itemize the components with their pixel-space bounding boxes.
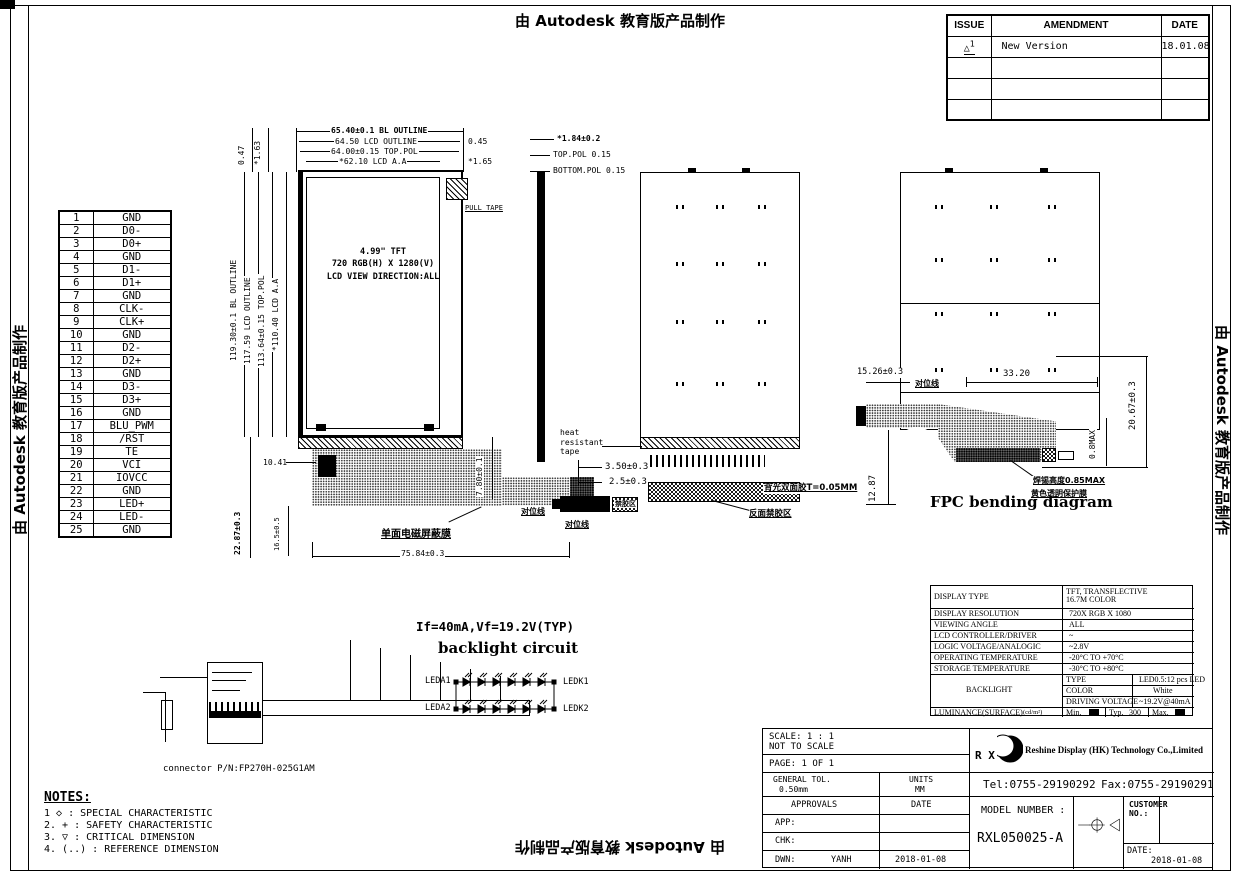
pin-name: D1+ xyxy=(93,277,171,290)
dwn-label: DWN: xyxy=(775,855,795,865)
span-shape: 300 xyxy=(1129,709,1141,717)
dim-offset-165: *1.65 xyxy=(467,157,493,166)
revision-table: ISSUE AMENDMENT DATE △1 New Version 18.0… xyxy=(946,14,1210,121)
dim-aa-h: *110.40 LCD A.A xyxy=(272,278,280,352)
pin-number: 4 xyxy=(59,251,93,264)
pin-row: 23 LED+ xyxy=(59,498,171,511)
section-view-bar xyxy=(537,172,545,462)
drawing-line xyxy=(879,772,880,869)
pin-number: 18 xyxy=(59,433,93,446)
notes-title: NOTES: xyxy=(44,790,219,805)
td-shape xyxy=(991,78,1161,99)
drawing-line xyxy=(530,171,550,172)
dim-75-84: 75.84±0.3 xyxy=(400,549,445,558)
td-shape xyxy=(1161,78,1209,99)
bend-cutout xyxy=(899,427,935,461)
dim-thickness: *1.84±0.2 xyxy=(556,134,601,143)
pin-number: 3 xyxy=(59,238,93,251)
connector-cable xyxy=(263,700,530,716)
drawing-line xyxy=(763,796,1214,797)
pin-number: 24 xyxy=(59,511,93,524)
heat-tape-label: heat resistant tape xyxy=(560,428,603,457)
spec-row-value: -20°C TO +70°C xyxy=(1069,654,1124,662)
div-shape xyxy=(935,368,943,372)
div-shape: resistant xyxy=(560,438,603,448)
led-diode-icon xyxy=(538,705,545,713)
drawing-line xyxy=(1123,796,1124,869)
drawing-line xyxy=(688,168,696,173)
drawing-line xyxy=(763,772,1214,773)
luminance-max-redacted xyxy=(1175,709,1185,716)
bend-tail-tip xyxy=(856,406,866,426)
div-shape xyxy=(1048,258,1056,262)
pin-row: 1 GND xyxy=(59,211,171,225)
pin-row: 11 D2- xyxy=(59,342,171,355)
units-value: MM xyxy=(915,785,925,795)
spec-row-label: VIEWING ANGLE xyxy=(934,621,998,629)
pin-number: 10 xyxy=(59,329,93,342)
pin-number: 2 xyxy=(59,225,93,238)
pin-row: 13 GND xyxy=(59,368,171,381)
drawing-line xyxy=(530,155,550,156)
pin-name: /RST xyxy=(93,433,171,446)
drawing-line xyxy=(1073,796,1074,869)
div-shape xyxy=(716,205,724,209)
drawing-sheet: 由 Autodesk 教育版产品制作 由 Autodesk 教育版产品制作 由 … xyxy=(0,0,1241,878)
watermark-right: 由 Autodesk 教育版产品制作 xyxy=(1213,280,1231,580)
span-shape: ~19.2V@40mA xyxy=(1139,698,1190,706)
dwn-name: YANH xyxy=(831,855,851,865)
pin-number: 17 xyxy=(59,420,93,433)
circle-shape xyxy=(997,735,1014,757)
fpc-connector-pin xyxy=(552,499,560,509)
drawing-line xyxy=(1148,707,1149,717)
pin-name: D0- xyxy=(93,225,171,238)
drawing-line xyxy=(578,482,602,483)
front-view-active-area xyxy=(306,177,440,429)
pin-number: 7 xyxy=(59,290,93,303)
drawing-line xyxy=(212,680,246,681)
td-shape xyxy=(991,99,1161,120)
no-glue-label: 禁胶区 xyxy=(614,500,637,508)
dim-top-pol-w: 64.00±0.15 TOP.POL xyxy=(330,147,419,156)
projection-symbol-icon xyxy=(1077,811,1123,839)
dim-offset-045: 0.45 xyxy=(467,137,488,146)
pin-name: IOVCC xyxy=(93,472,171,485)
fax: Fax:0755-29190291 xyxy=(1101,778,1214,791)
corner-mark xyxy=(0,0,15,9)
dim-lcd-outline-h: 117.59 LCD OUTLINE xyxy=(244,276,252,365)
pin-name: BLU_PWM xyxy=(93,420,171,433)
connector-bracket xyxy=(161,700,173,730)
div-shape xyxy=(758,262,766,266)
span-shape: Typ. xyxy=(1109,709,1123,717)
div-shape: heat xyxy=(560,428,603,438)
dwn-date: 2018-01-08 xyxy=(895,855,946,865)
backlight-tape-label: 背光双面胶T=0.05MM xyxy=(763,484,858,494)
td-shape xyxy=(947,57,991,78)
led-diode-icon xyxy=(538,678,545,686)
fpc-front xyxy=(312,449,502,506)
dim-15-26: 15.26±0.3 xyxy=(856,368,904,378)
drawing-line xyxy=(250,437,251,558)
scale-note: NOT TO SCALE xyxy=(769,742,834,753)
drawing-line xyxy=(900,392,1100,393)
pin-row: 4 GND xyxy=(59,251,171,264)
drawing-line xyxy=(900,303,1100,304)
spec-backlight-label: BACKLIGHT xyxy=(966,686,1012,694)
pin-number: 20 xyxy=(59,459,93,472)
led-diode-icon xyxy=(508,678,515,686)
dim-top-pol-h: 113.64±0.15 TOP.POL xyxy=(258,274,266,368)
chk-label: CHK: xyxy=(775,836,795,846)
pin-row: 2 D0- xyxy=(59,225,171,238)
pin-row: 8 CLK- xyxy=(59,303,171,316)
dim-bl-outline-h: 119.30±0.1 BL OUTLINE xyxy=(230,259,238,362)
spec-luminance-label: LUMINANCE(SURFACE) xyxy=(934,709,1023,717)
led-diode-icon xyxy=(523,678,530,686)
luminance-min-redacted xyxy=(1089,709,1099,716)
span-shape: DRIVING VOLTAGE xyxy=(1066,698,1138,706)
app-label: APP: xyxy=(775,818,795,828)
led-diode-icon xyxy=(493,678,500,686)
backlight-spec: If=40mA,Vf=19.2V(TYP) xyxy=(416,619,574,634)
led-anode-1: LEDA1 xyxy=(424,677,452,687)
pull-tape-patch xyxy=(446,178,468,200)
div-shape xyxy=(990,312,998,316)
pin-number: 11 xyxy=(59,342,93,355)
span-shape: Min. xyxy=(1066,709,1081,717)
revision-date: 18.01.08 xyxy=(1161,36,1209,57)
solder-note-1: 焊锡高度0.85MAX xyxy=(1032,476,1106,485)
dim-3-50: 3.50±0.3 xyxy=(604,462,649,472)
revision-row-empty xyxy=(947,99,1209,120)
company-name: Reshine Display (HK) Technology Co.,Limi… xyxy=(1025,745,1203,755)
span-shape: COLOR xyxy=(1066,687,1093,695)
sup-shape: 1 xyxy=(970,39,975,49)
drawing-line xyxy=(866,504,896,505)
tbody-shape: ISSUE AMENDMENT DATE △1 New Version 18.0… xyxy=(947,15,1209,120)
bend-end-block xyxy=(1042,448,1056,462)
pin-row: 6 D1+ xyxy=(59,277,171,290)
back-view-tape-strip xyxy=(640,437,800,449)
pin-number: 23 xyxy=(59,498,93,511)
drawing-line xyxy=(602,446,642,447)
panel-mark xyxy=(316,424,326,431)
alignment-mark-label: 对位线 xyxy=(520,507,546,516)
drawing-line xyxy=(212,690,240,691)
pin-row: 14 D3- xyxy=(59,381,171,394)
drawing-line xyxy=(1097,377,1098,387)
pin-row: 17 BLU_PWM xyxy=(59,420,171,433)
pin-number: 12 xyxy=(59,355,93,368)
backlight-title: backlight circuit xyxy=(438,639,578,657)
pin-name: D1- xyxy=(93,264,171,277)
div-shape xyxy=(990,205,998,209)
spec-row-value: -30°C TO +80°C xyxy=(1069,665,1124,673)
dim-offset-047: 0.47 xyxy=(238,145,246,166)
pin-name: TE xyxy=(93,446,171,459)
revision-row-empty xyxy=(947,78,1209,99)
dim-bl-outline-w: 65.40±0.1 BL OUTLINE xyxy=(330,126,428,135)
alignment-mark-label-3: 对位线 xyxy=(914,379,940,388)
drawing-line xyxy=(209,711,261,718)
revision-triangle-icon: △1 xyxy=(964,43,975,55)
drawing-line xyxy=(763,850,969,851)
pin-row: 16 GND xyxy=(59,407,171,420)
dim-top-pol-t: TOP.POL 0.15 xyxy=(552,150,612,159)
notes-section: NOTES: 1 ◇ : SPECIAL CHARACTERISTIC 2. +… xyxy=(44,790,219,856)
bend-end-tab xyxy=(1058,451,1074,460)
drawing-line xyxy=(763,754,969,755)
drawing-line xyxy=(966,377,967,387)
spec-luminance-unit: (cd/m²) xyxy=(1023,710,1042,717)
drawing-line xyxy=(286,172,287,437)
pin-row: 15 D3+ xyxy=(59,394,171,407)
spec-row-value: ALL xyxy=(1069,621,1085,629)
drawing-line xyxy=(288,506,289,556)
drawing-line xyxy=(470,669,471,700)
general-tol-label: GENERAL TOL. xyxy=(773,775,831,785)
span-shape: White xyxy=(1153,687,1173,695)
pin-row: 9 CLK+ xyxy=(59,316,171,329)
crescent-logo-icon xyxy=(997,733,1023,765)
drawing-line xyxy=(945,168,953,173)
pin-row: 21 IOVCC xyxy=(59,472,171,485)
revision-col-amendment: AMENDMENT xyxy=(991,15,1161,36)
note-item: 3. ▽ : CRITICAL DIMENSION xyxy=(44,832,219,844)
tbody-shape: 1 GND 2 D0- 3 D0+ 4 GND xyxy=(59,211,171,537)
drawing-line xyxy=(380,648,381,700)
units-label: UNITS xyxy=(909,775,933,785)
drawing-line xyxy=(286,462,316,463)
tr-shape: ISSUE AMENDMENT DATE xyxy=(947,15,1209,36)
fpc-stiffener xyxy=(318,455,336,477)
no-glue-back-label: 反面禁胶区 xyxy=(748,510,793,520)
shield-film-label: 单面电磁屏蔽膜 xyxy=(380,525,452,540)
td-shape xyxy=(991,57,1161,78)
drawing-line xyxy=(763,814,969,815)
note-item: 4. (..) : REFERENCE DIMENSION xyxy=(44,844,219,856)
page-label: PAGE: 1 OF 1 xyxy=(769,759,834,770)
pin-name: D3+ xyxy=(93,394,171,407)
watermark-bottom: 由 Autodesk 教育版产品制作 xyxy=(470,838,770,856)
div-shape xyxy=(1048,312,1056,316)
pin-name: CLK+ xyxy=(93,316,171,329)
drawing-line xyxy=(1106,418,1107,466)
pin-number: 5 xyxy=(59,264,93,277)
div-shape xyxy=(935,258,943,262)
revision-row: △1 New Version 18.01.08 xyxy=(947,36,1209,57)
pin-number: 25 xyxy=(59,524,93,538)
dim-16-5: 16.5±0.5 xyxy=(274,516,281,552)
pin-name: GND xyxy=(93,524,171,538)
dim-12-87: 12.87 xyxy=(869,474,878,503)
pin-row: 7 GND xyxy=(59,290,171,303)
drawing-line xyxy=(1056,356,1148,357)
bend-body-dark xyxy=(956,448,1040,462)
title-block: SCALE: 1 : 1 NOT TO SCALE PAGE: 1 OF 1 G… xyxy=(762,728,1213,868)
spec-row-value: TFT, TRANSFLECTIVE 16.7M COLOR xyxy=(1066,588,1147,605)
panel-description: 4.99" TFT 720 RGB(H) X 1280(V) LCD VIEW … xyxy=(323,246,443,283)
spec-row-label: LOGIC VOLTAGE/ANALOGIC xyxy=(934,643,1041,651)
span-shape: Max. xyxy=(1152,709,1169,717)
span-shape: LED0.5:12 pcs LED xyxy=(1139,676,1205,684)
pin-name: VCI xyxy=(93,459,171,472)
watermark-left: 由 Autodesk 教育版产品制作 xyxy=(11,280,29,580)
div-shape xyxy=(716,320,724,324)
dim-aa-w: *62.10 LCD A.A xyxy=(338,157,407,166)
div-shape xyxy=(758,382,766,386)
pin-name: D3- xyxy=(93,381,171,394)
drawing-line xyxy=(888,430,889,505)
bend-tail xyxy=(866,404,940,428)
polygon-shape xyxy=(1110,819,1119,831)
drawing-line xyxy=(763,832,969,833)
drawing-line xyxy=(578,467,602,468)
pin-name: GND xyxy=(93,407,171,420)
div-shape xyxy=(676,382,684,386)
div-shape xyxy=(935,312,943,316)
dim-2-5: 2.5±0.3 xyxy=(608,477,648,487)
drawing-line xyxy=(440,662,441,700)
drawing-line xyxy=(866,382,910,383)
div-shape xyxy=(676,262,684,266)
spec-table: DISPLAY TYPE TFT, TRANSFLECTIVE 16.7M CO… xyxy=(930,585,1193,716)
pin-name: GND xyxy=(93,329,171,342)
td-shape xyxy=(947,99,991,120)
pin-number: 9 xyxy=(59,316,93,329)
approvals-header: APPROVALS xyxy=(791,800,837,810)
dim-10-41: 10.41 xyxy=(262,458,288,467)
drawing-line xyxy=(1123,843,1214,844)
div-shape xyxy=(716,382,724,386)
drawing-line xyxy=(212,672,252,673)
connector-part-number: connector P/N:FP270H-025G1AM xyxy=(163,764,315,774)
pin-name: LED- xyxy=(93,511,171,524)
spec-row-label: STORAGE TEMPERATURE xyxy=(934,665,1030,673)
spec-row-label: DISPLAY RESOLUTION xyxy=(934,610,1019,618)
td-shape: △1 xyxy=(947,36,991,57)
model-number-label: MODEL NUMBER : xyxy=(981,805,1065,817)
bending-diagram-title: FPC bending diagram xyxy=(930,493,1113,511)
pin-name: GND xyxy=(93,290,171,303)
div-shape xyxy=(990,258,998,262)
front-view-tape-strip xyxy=(298,437,463,449)
led-cathode-1: LEDK1 xyxy=(562,678,590,688)
pin-name: GND xyxy=(93,211,171,225)
drawing-line xyxy=(742,168,750,173)
div-shape xyxy=(1048,205,1056,209)
pin-row: 25 GND xyxy=(59,524,171,538)
spec-row-label: OPERATING TEMPERATURE xyxy=(934,654,1038,662)
pin-name: GND xyxy=(93,251,171,264)
div-shape xyxy=(676,205,684,209)
pin-name: CLK- xyxy=(93,303,171,316)
div-shape xyxy=(990,368,998,372)
pin-row: 3 D0+ xyxy=(59,238,171,251)
drawing-line xyxy=(160,677,207,678)
dim-20-67: 20.67±0.3 xyxy=(1129,380,1138,431)
pin-number: 6 xyxy=(59,277,93,290)
div-shape xyxy=(758,320,766,324)
drawing-line xyxy=(1105,707,1106,717)
back-view xyxy=(640,172,800,438)
spec-row-value: 720X RGB X 1080 xyxy=(1069,610,1131,618)
pull-tape-label: PULL TAPE xyxy=(464,204,504,212)
pin-name: LED+ xyxy=(93,498,171,511)
pin-table: 1 GND 2 D0- 3 D0+ 4 GND xyxy=(58,210,172,538)
spec-row-value: ~ xyxy=(1069,632,1073,640)
dim-lcd-outline-w: 64.50 LCD OUTLINE xyxy=(334,137,418,146)
span-shape: TYPE xyxy=(1066,676,1086,684)
drawing-line xyxy=(1040,168,1048,173)
note-item: 1 ◇ : SPECIAL CHARACTERISTIC xyxy=(44,808,219,820)
led-diode-icon xyxy=(478,678,485,686)
pin-name: D0+ xyxy=(93,238,171,251)
general-tol-value: 0.50mm xyxy=(779,785,808,795)
led-cathode-2: LEDK2 xyxy=(562,705,590,715)
drawing-line xyxy=(500,676,501,700)
drawing-line xyxy=(1146,356,1147,468)
div-shape xyxy=(676,320,684,324)
dim-22-87: 22.87±0.3 xyxy=(234,511,242,556)
drawing-line xyxy=(268,128,269,172)
td-shape xyxy=(1161,57,1209,78)
td-shape xyxy=(947,78,991,99)
led-diode-icon xyxy=(463,678,470,686)
dim-0-8max: 0.8MAX xyxy=(1089,429,1097,460)
model-number-value: RXL050025-A xyxy=(977,831,1063,847)
panel-view-direction: LCD VIEW DIRECTION:ALL xyxy=(323,271,443,283)
pin-number: 21 xyxy=(59,472,93,485)
fpc-connector xyxy=(560,496,610,512)
revision-amendment: New Version xyxy=(991,36,1161,57)
drawing-line xyxy=(296,128,297,172)
dim-33-20: 33.20 xyxy=(1002,369,1031,379)
td-shape xyxy=(1161,99,1209,120)
pin-row: 10 GND xyxy=(59,329,171,342)
watermark-top: 由 Autodesk 教育版产品制作 xyxy=(470,12,770,30)
div-shape xyxy=(716,262,724,266)
pin-number: 8 xyxy=(59,303,93,316)
div-shape: tape xyxy=(560,447,603,457)
pin-row: 20 VCI xyxy=(59,459,171,472)
logo-text: R X xyxy=(975,749,995,762)
dim-bottom-pol-t: BOTTOM.POL 0.15 xyxy=(552,166,626,175)
div-shape: 1 ◇ : SPECIAL CHARACTERISTIC 2. + : SAFE… xyxy=(44,808,219,856)
pin-name: D2- xyxy=(93,342,171,355)
customer-no-label: CUSTOMER NO.: xyxy=(1129,800,1168,818)
drawing-line xyxy=(143,692,165,693)
pin-number: 19 xyxy=(59,446,93,459)
drawing-line xyxy=(530,139,554,140)
dim-7-80: 7.80±0.1 xyxy=(476,456,484,497)
pin-number: 15 xyxy=(59,394,93,407)
tel: Tel:0755-29190292 xyxy=(983,778,1096,791)
div-shape xyxy=(758,205,766,209)
drawing-line xyxy=(463,128,464,172)
panel-resolution: 720 RGB(H) X 1280(V) xyxy=(323,258,443,270)
pin-name: GND xyxy=(93,368,171,381)
panel-size: 4.99" TFT xyxy=(323,246,443,258)
revision-col-issue: ISSUE xyxy=(947,15,991,36)
drawing-line xyxy=(969,729,970,869)
revision-col-date: DATE xyxy=(1161,15,1209,36)
date-header: DATE xyxy=(911,800,931,810)
spec-row-value: ~2.8V xyxy=(1069,643,1089,651)
pin-number: 16 xyxy=(59,407,93,420)
